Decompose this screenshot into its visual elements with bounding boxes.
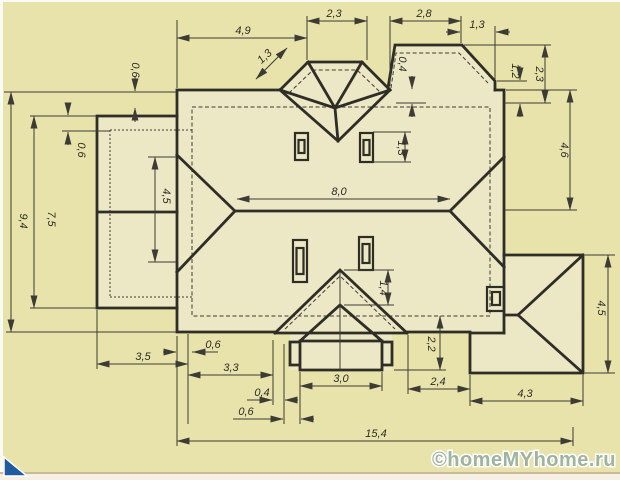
dim-label-right-12: 1,2 <box>509 63 521 78</box>
dim-label-porch-30: 3,0 <box>333 373 349 385</box>
bottom-rule <box>0 472 620 474</box>
dim-label-left-94: 9,4 <box>17 213 29 228</box>
corner-triangle-icon <box>4 457 27 476</box>
dim-label-bottom-24: 2,4 <box>429 376 445 388</box>
dim-label-chimney-13: 1,3 <box>395 140 407 156</box>
dim-label-annex-45: 4,5 <box>160 188 172 204</box>
dim-label-right-23: 2,3 <box>533 65 545 82</box>
dim-label-bay-13: 1,3 <box>255 47 275 67</box>
dim-label-top-49: 4,9 <box>235 25 250 37</box>
page-edge-left <box>0 0 3 480</box>
dim-label-total-154: 15,4 <box>365 428 386 440</box>
dim-label-right-46: 4,6 <box>558 142 570 158</box>
roof-plan-screenshot: 4,9 2,3 2,8 1,3 8,0 0,6 3,5 3,3 0,4 0,6 … <box>0 0 620 480</box>
dim-label-top-13: 1,3 <box>469 19 485 31</box>
watermark: ©homeMYhome.ru <box>432 449 616 471</box>
bottom-strip <box>0 474 620 480</box>
dim-label-garage-45: 4,5 <box>595 300 607 316</box>
dim-label-bottom-35: 3,5 <box>135 351 151 363</box>
dim-label-bottom-33: 3,3 <box>223 362 239 374</box>
dim-label-bottom-06-porch: 0,6 <box>238 406 254 418</box>
dim-label-left-75: 7,5 <box>45 211 57 227</box>
roof-plan-blueprint: 4,9 2,3 2,8 1,3 8,0 0,6 3,5 3,3 0,4 0,6 … <box>0 0 620 480</box>
dim-label-top-28: 2,8 <box>415 8 432 20</box>
page-edge-top <box>0 0 620 2</box>
dim-label-bottom-04: 0,4 <box>254 387 269 399</box>
dim-label-porch-14: 1,4 <box>377 280 389 295</box>
dim-label-ridge-80: 8,0 <box>331 186 347 198</box>
dim-label-right-22: 2,2 <box>425 335 437 351</box>
dim-label-bottom-06-eave: 0,6 <box>205 339 221 351</box>
dim-label-bay-04: 0,4 <box>396 56 408 71</box>
dim-label-top-06-main: 0,6 <box>129 62 141 78</box>
dim-label-bottom-43: 4,3 <box>517 388 533 400</box>
dim-label-top-23: 2,3 <box>325 8 342 20</box>
dim-label-left-06-annex: 0,6 <box>75 142 87 158</box>
